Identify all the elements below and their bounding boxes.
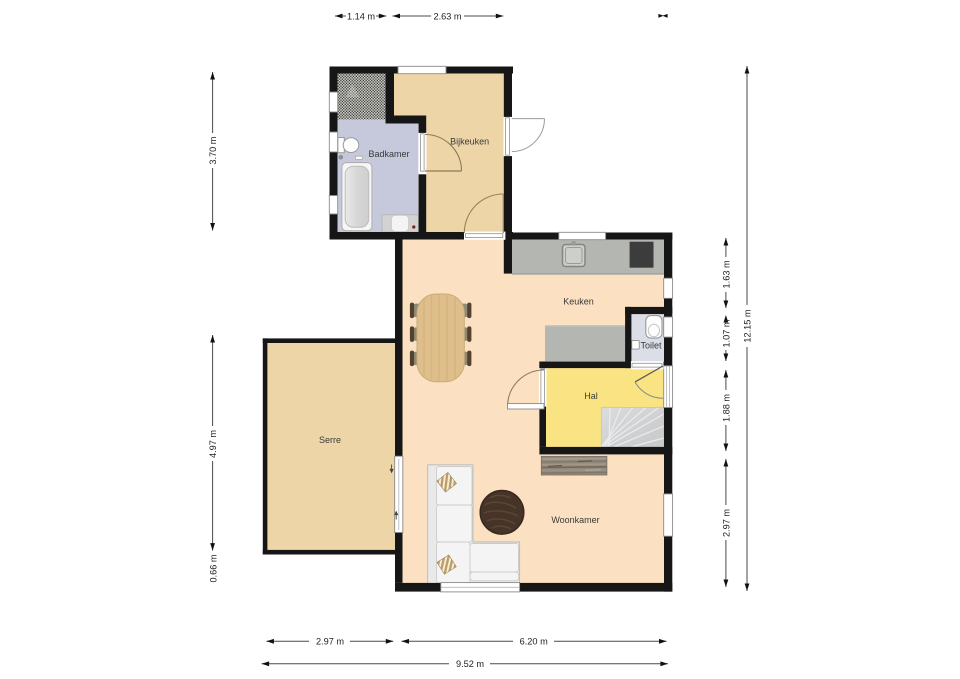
svg-text:2.97 m: 2.97 m — [316, 637, 344, 647]
svg-text:Bijkeuken: Bijkeuken — [450, 137, 489, 147]
svg-text:Badkamer: Badkamer — [368, 149, 409, 159]
svg-text:Keuken: Keuken — [563, 297, 594, 307]
svg-text:6.20 m: 6.20 m — [520, 637, 548, 647]
svg-text:12.15 m: 12.15 m — [742, 309, 752, 343]
svg-text:4.97 m: 4.97 m — [208, 430, 218, 458]
svg-text:1.63 m: 1.63 m — [721, 260, 731, 288]
svg-text:Hal: Hal — [584, 391, 598, 401]
svg-text:2.63 m: 2.63 m — [433, 11, 461, 21]
svg-text:Serre: Serre — [319, 435, 341, 445]
svg-text:1.88 m: 1.88 m — [721, 394, 731, 422]
svg-text:2.97 m: 2.97 m — [721, 509, 731, 537]
svg-text:0.66 m: 0.66 m — [208, 554, 218, 582]
svg-text:1.07 m: 1.07 m — [721, 319, 731, 347]
svg-text:3.70 m: 3.70 m — [208, 136, 218, 164]
svg-text:1.14 m: 1.14 m — [347, 11, 375, 21]
svg-text:Toilet: Toilet — [640, 341, 662, 351]
svg-text:9.52 m: 9.52 m — [456, 659, 484, 669]
svg-text:Woonkamer: Woonkamer — [551, 515, 599, 525]
